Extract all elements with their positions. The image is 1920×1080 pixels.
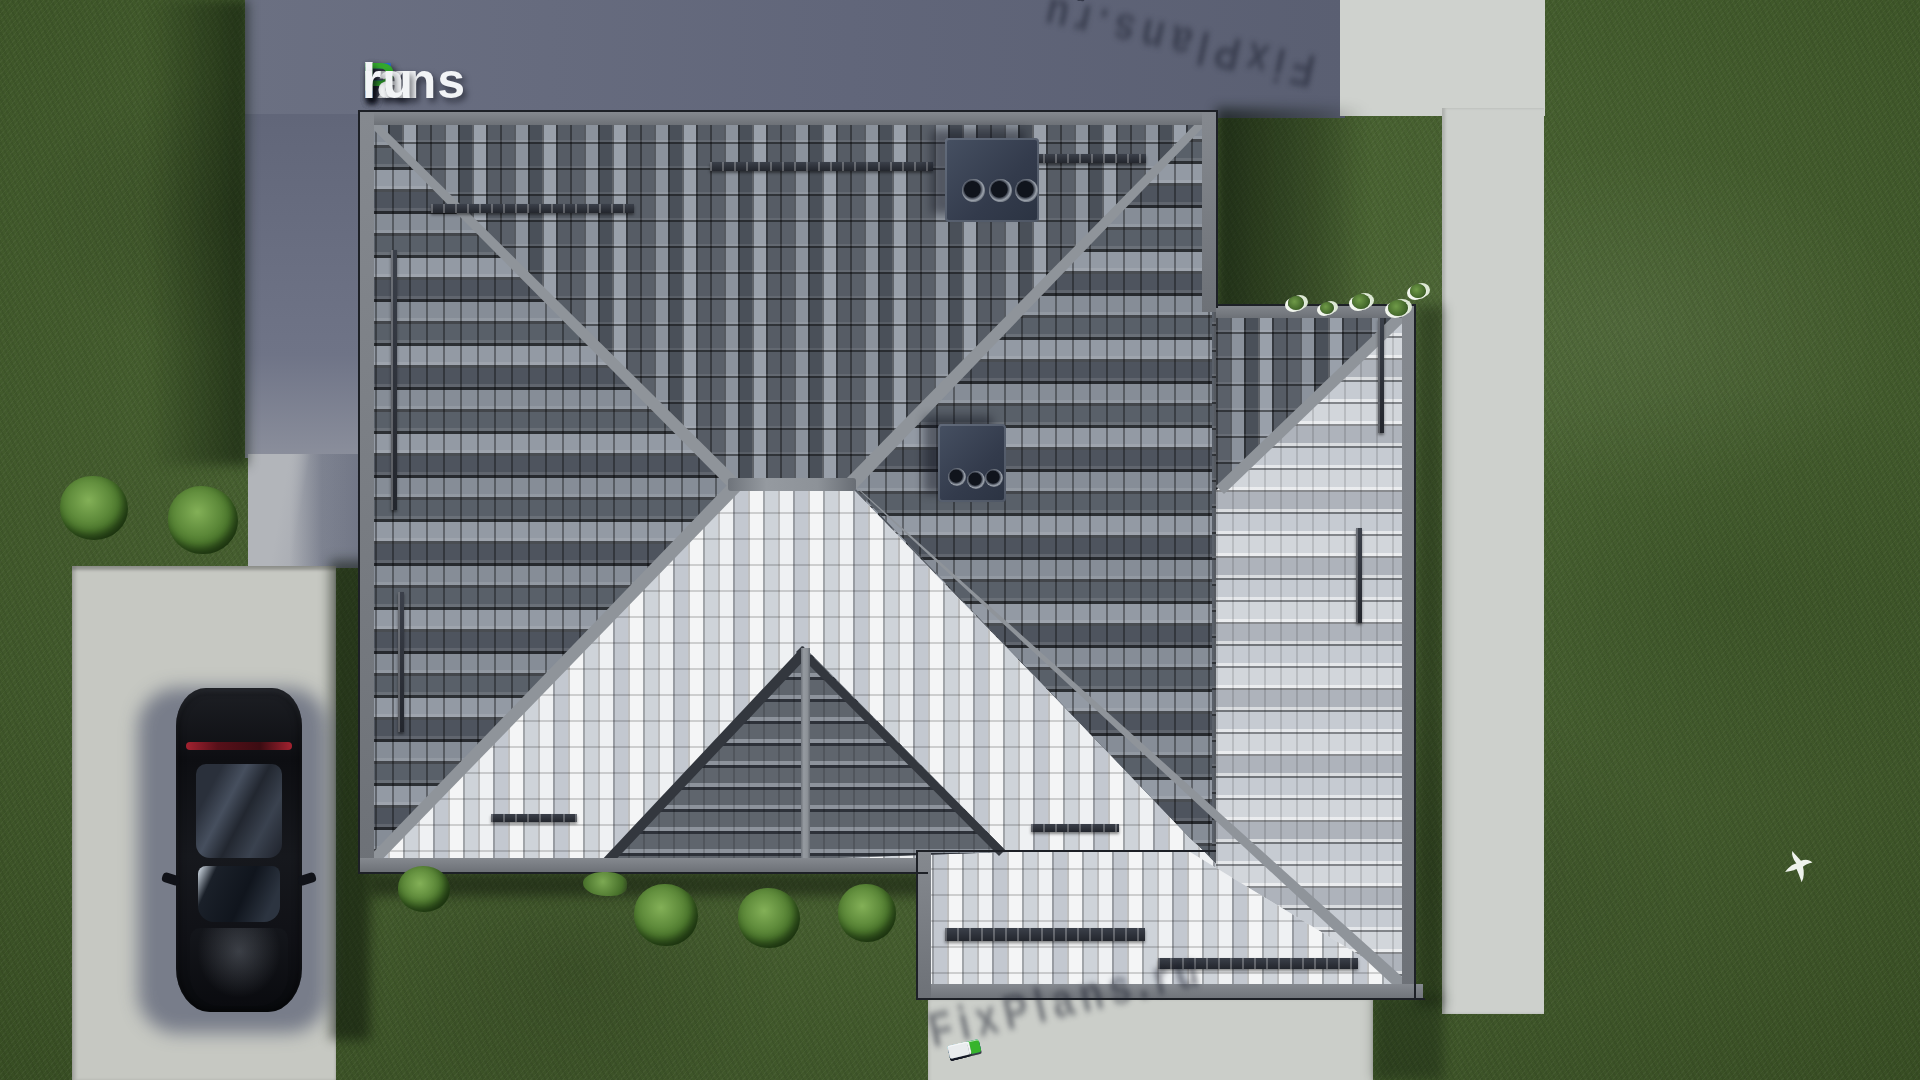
eave-wing-north (1216, 304, 1414, 318)
grass-tuft (583, 872, 627, 896)
bird-icon (1778, 846, 1818, 890)
roof-edge (916, 852, 918, 1000)
eave-west (360, 112, 374, 872)
roof-edge (1414, 304, 1416, 1000)
snow-guard (1031, 824, 1119, 832)
bush (168, 486, 238, 554)
chimney-1-vent (1015, 179, 1038, 202)
bush (634, 884, 698, 946)
eave-east-main (1202, 112, 1216, 312)
eave-north (360, 112, 1216, 125)
house-shadow (148, 0, 248, 465)
house-roof (358, 108, 1424, 1000)
drain-pipe (1356, 528, 1362, 623)
bush (398, 866, 450, 912)
plant (1288, 296, 1304, 310)
bush (838, 884, 896, 942)
snow-guard (391, 250, 397, 510)
aerial-render: FixPlans.ru FixPlans.ru FixPlans.ru (0, 0, 1920, 1080)
chimney-2-vent (967, 471, 985, 489)
gable-ridge (801, 648, 810, 866)
patio-shadow (1373, 994, 1443, 1080)
brand-logo-segment: ru (362, 52, 414, 110)
roof-edge (358, 110, 1218, 112)
drain-pipe (1378, 318, 1384, 433)
garden-path-top (1340, 0, 1545, 116)
roof-edge (916, 850, 1216, 852)
plant (1410, 284, 1426, 298)
plant (1388, 300, 1408, 316)
eave-section-west (917, 852, 931, 1000)
chimney-2-vent (985, 469, 1003, 487)
roof-edge (1216, 110, 1218, 308)
snow-guard (398, 592, 404, 732)
chimney-1-vent (989, 179, 1012, 202)
car-windshield (198, 866, 280, 922)
concrete-pad-left (245, 114, 367, 458)
snow-guard (710, 162, 933, 171)
roof-edge (358, 110, 360, 874)
eave-south (360, 858, 925, 872)
bush (60, 476, 128, 540)
snow-guard (945, 928, 1145, 941)
plant (1320, 302, 1334, 314)
chimney-2 (938, 424, 1006, 502)
roof-edge (1216, 304, 1416, 306)
snow-guard (431, 204, 634, 213)
plant (1352, 294, 1370, 309)
snow-guard (1031, 154, 1146, 163)
watermark-block (947, 1042, 969, 1059)
walkway (248, 454, 367, 568)
chimney-2-vent (948, 468, 966, 486)
main-ridge (728, 478, 856, 491)
snow-guard (491, 814, 577, 822)
car-hood (190, 928, 288, 1006)
car-taillight (186, 742, 292, 750)
bush (738, 888, 800, 948)
car-roof-glass (196, 764, 282, 858)
chimney-1-vent (962, 179, 985, 202)
garden-path-right (1442, 108, 1544, 1014)
